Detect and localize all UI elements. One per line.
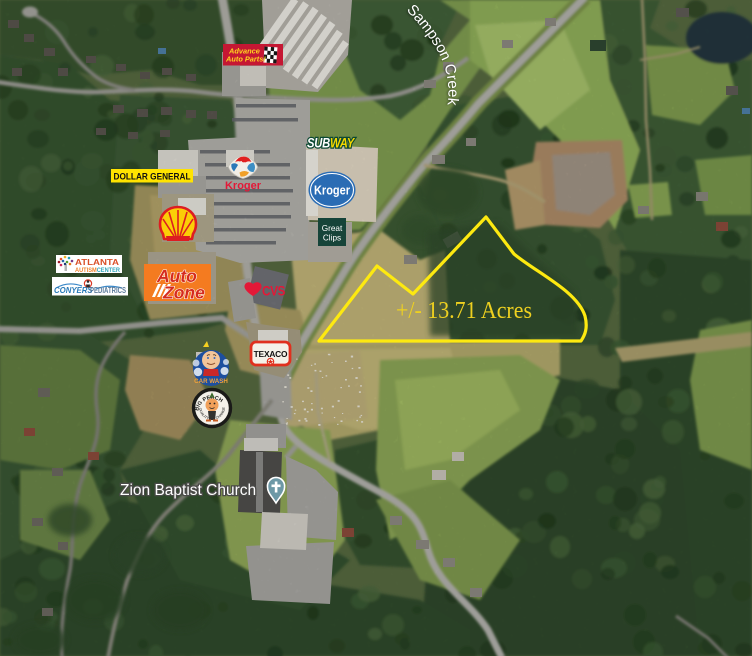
svg-text:PEDIATRICS: PEDIATRICS [90,286,126,295]
svg-text:Clips: Clips [323,234,341,243]
svg-text:TEXACO: TEXACO [254,349,288,359]
svg-text:CONYERS: CONYERS [54,286,93,295]
svg-text:SUBWAY: SUBWAY [307,135,356,151]
svg-text:+/- 13.71 Acres: +/- 13.71 Acres [396,298,532,324]
svg-text:AUTISMCENTER: AUTISMCENTER [75,268,121,274]
svg-text:Zion Baptist Church: Zion Baptist Church [120,482,256,499]
svg-text:CAR WASH: CAR WASH [194,378,228,385]
svg-text:CVS: CVS [262,284,285,299]
svg-text:Auto Parts!: Auto Parts! [225,55,266,64]
svg-text:Kroger: Kroger [225,180,262,192]
svg-text:ATLANTA: ATLANTA [75,257,119,267]
svg-text:Great: Great [322,224,343,233]
svg-text:Kroger: Kroger [314,184,350,198]
svg-text:Zone: Zone [162,283,205,303]
svg-text:DOLLAR GENERAL: DOLLAR GENERAL [114,171,191,182]
